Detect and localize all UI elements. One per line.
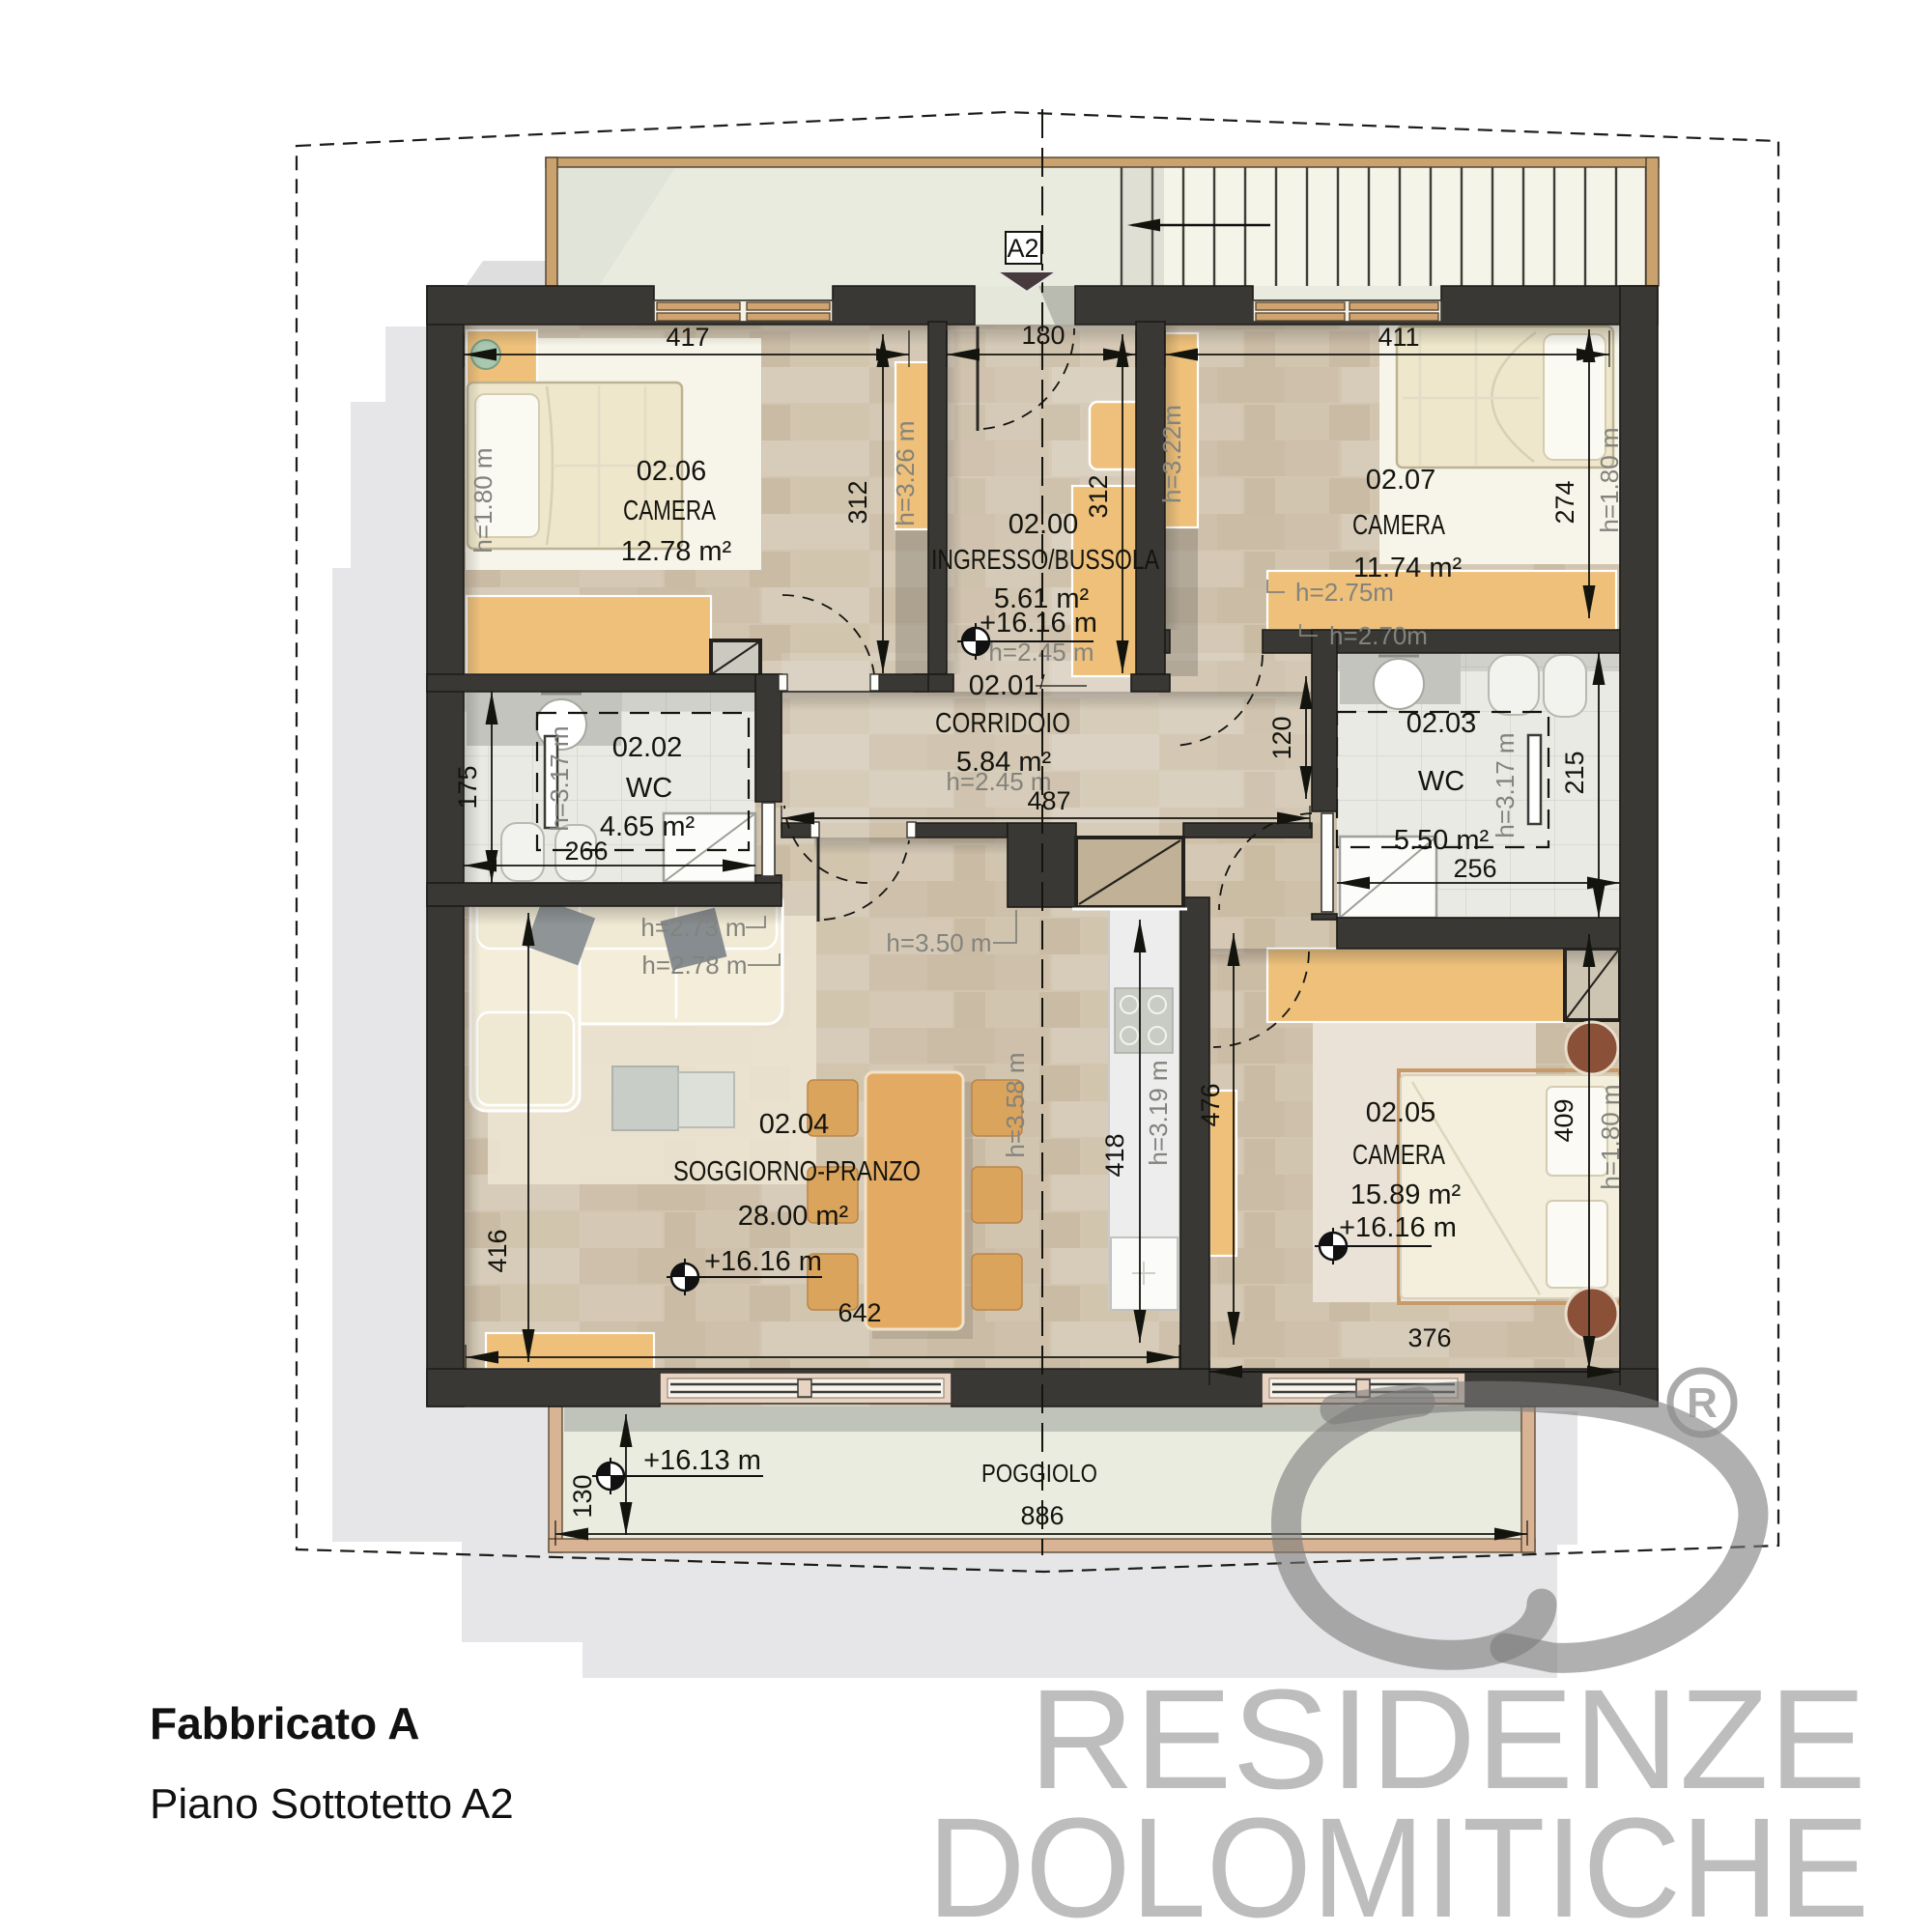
svg-text:256: 256: [1453, 854, 1496, 883]
svg-text:h=3.17 m: h=3.17 m: [1491, 732, 1520, 838]
svg-text:215: 215: [1560, 751, 1589, 794]
svg-text:h=2.78 m: h=2.78 m: [641, 951, 747, 980]
svg-text:h=3.22m: h=3.22m: [1157, 405, 1186, 503]
svg-text:476: 476: [1196, 1083, 1225, 1126]
svg-text:WC: WC: [626, 773, 672, 804]
svg-text:02.04: 02.04: [759, 1109, 830, 1140]
svg-text:Piano Sottotetto A2: Piano Sottotetto A2: [150, 1780, 514, 1828]
svg-text:274: 274: [1550, 480, 1579, 524]
svg-text:+16.16 m: +16.16 m: [980, 608, 1097, 639]
svg-text:120: 120: [1267, 716, 1296, 759]
svg-text:h=2.75m: h=2.75m: [1295, 578, 1394, 607]
svg-text:CAMERA: CAMERA: [623, 496, 717, 526]
svg-text:DOLOMITICHE: DOLOMITICHE: [927, 1789, 1869, 1932]
svg-text:12.78 m²: 12.78 m²: [621, 536, 732, 567]
svg-text:418: 418: [1100, 1133, 1129, 1177]
svg-text:411: 411: [1378, 323, 1419, 352]
svg-text:h=3.50 m: h=3.50 m: [886, 928, 991, 957]
svg-text:312: 312: [843, 480, 872, 524]
svg-text:02.05: 02.05: [1366, 1097, 1436, 1128]
svg-text:02.06: 02.06: [637, 456, 707, 487]
svg-text:02.01: 02.01: [969, 670, 1039, 701]
svg-text:642: 642: [838, 1298, 881, 1327]
svg-text:SOGGIORNO-PRANZO: SOGGIORNO-PRANZO: [673, 1156, 921, 1187]
svg-text:130: 130: [568, 1474, 597, 1518]
svg-text:+16.13 m: +16.13 m: [643, 1445, 761, 1476]
svg-text:416: 416: [483, 1229, 512, 1272]
svg-text:h=1.80 m: h=1.80 m: [1595, 427, 1624, 532]
svg-text:312: 312: [1084, 474, 1113, 518]
svg-text:WC: WC: [1418, 766, 1464, 797]
svg-text:CAMERA: CAMERA: [1352, 1140, 1446, 1171]
svg-text:h=3.19 m: h=3.19 m: [1144, 1060, 1173, 1165]
svg-text:CORRIDOIO: CORRIDOIO: [935, 708, 1070, 739]
svg-text:409: 409: [1549, 1098, 1578, 1142]
svg-text:h=1.80 m: h=1.80 m: [469, 447, 497, 553]
svg-text:POGGIOLO: POGGIOLO: [981, 1459, 1097, 1488]
svg-text:+16.16 m: +16.16 m: [704, 1246, 822, 1277]
svg-text:h=3.26 m: h=3.26 m: [891, 420, 920, 526]
svg-text:28.00 m²: 28.00 m²: [738, 1201, 849, 1232]
svg-text:h=2.45 m: h=2.45 m: [946, 767, 1051, 796]
svg-text:h=2.70m: h=2.70m: [1329, 621, 1428, 650]
svg-text:h=3.17 m: h=3.17 m: [545, 725, 574, 831]
svg-text:02.03: 02.03: [1406, 708, 1477, 739]
svg-text:417: 417: [666, 323, 709, 352]
svg-text:h=3.58 m: h=3.58 m: [1001, 1052, 1030, 1157]
svg-text:INGRESSO/BUSSOLA: INGRESSO/BUSSOLA: [931, 545, 1160, 576]
svg-text:15.89 m²: 15.89 m²: [1350, 1179, 1462, 1210]
svg-text:02.07: 02.07: [1366, 465, 1436, 496]
svg-text:R: R: [1687, 1379, 1718, 1427]
svg-text:A2: A2: [1007, 234, 1038, 263]
svg-text:+16.16 m: +16.16 m: [1339, 1212, 1457, 1243]
svg-text:4.65 m²: 4.65 m²: [600, 811, 696, 842]
svg-text:02.02: 02.02: [612, 732, 683, 763]
svg-text:175: 175: [453, 765, 482, 809]
svg-text:h=1.80 m: h=1.80 m: [1596, 1084, 1625, 1189]
svg-text:Fabbricato A: Fabbricato A: [150, 1698, 419, 1748]
svg-text:376: 376: [1407, 1323, 1451, 1352]
svg-text:CAMERA: CAMERA: [1352, 510, 1446, 541]
svg-text:5.50 m²: 5.50 m²: [1394, 825, 1490, 856]
svg-text:h=2.73 m: h=2.73 m: [640, 913, 746, 942]
